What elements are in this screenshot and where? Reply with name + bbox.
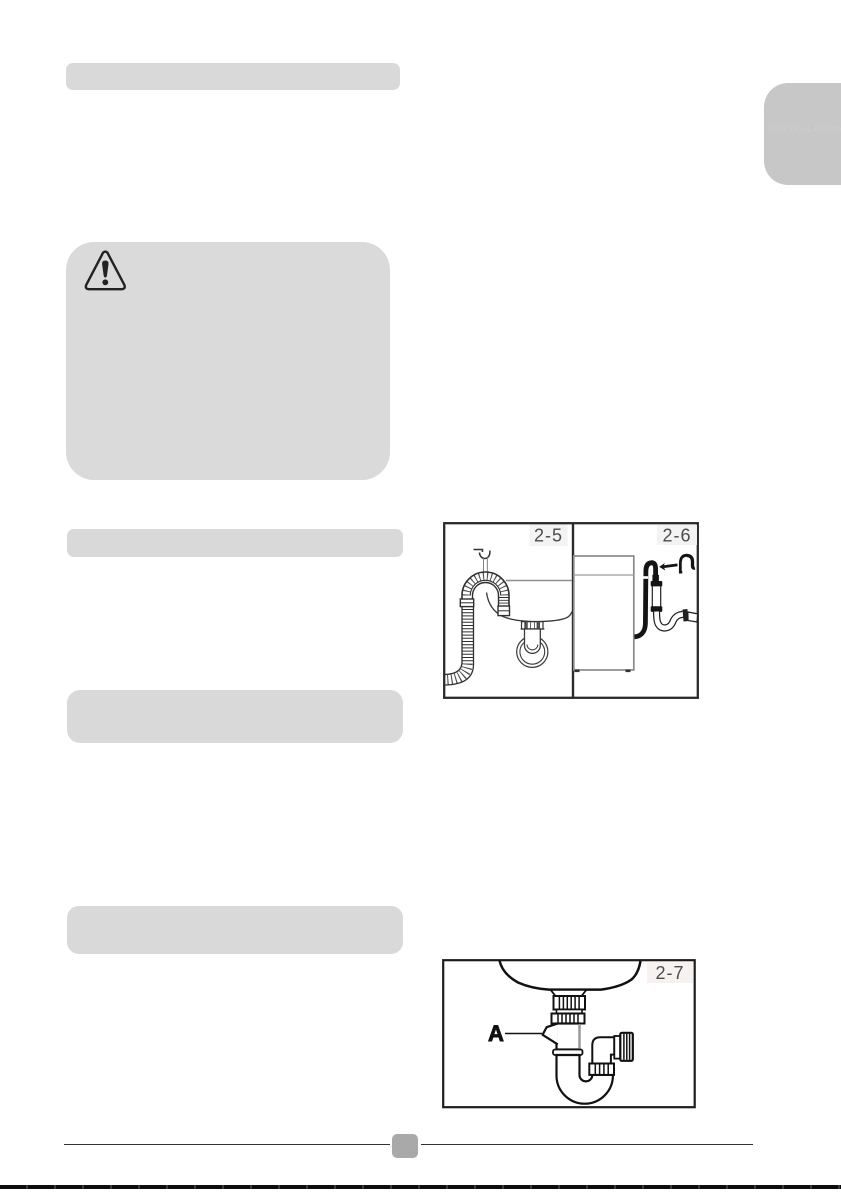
svg-text:A: A	[488, 1021, 504, 1046]
svg-text:2-7: 2-7	[655, 963, 684, 983]
svg-text:2-5: 2-5	[534, 526, 563, 546]
svg-text:2-6: 2-6	[662, 526, 691, 546]
